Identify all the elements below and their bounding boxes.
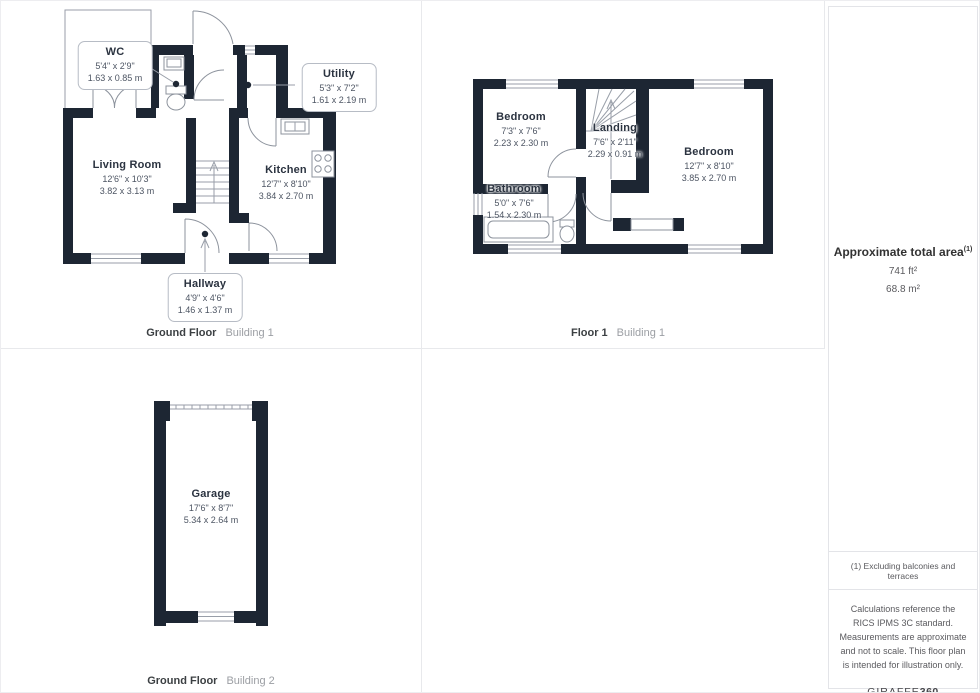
room-label-garage: Garage 17'6" x 8'7" 5.34 x 2.64 m	[184, 488, 239, 526]
giraffe360-logo: GIRAFFE360	[839, 684, 967, 693]
total-area-title: Approximate total area(1)	[829, 245, 977, 259]
footnote-text: (1) Excluding balconies and terraces	[837, 561, 969, 581]
stairs	[196, 161, 229, 203]
caption-floor: Ground Floor	[147, 675, 217, 687]
room-dim-imperial: 12'7" x 8'10"	[682, 161, 737, 172]
caption-floor: Ground Floor	[146, 327, 216, 339]
ground-floor-building1-plan: WC 5'4" x 2'9" 1.63 x 0.85 m Utility 5'3…	[1, 1, 421, 348]
footnote-balconies: (1) Excluding balconies and terraces	[829, 551, 977, 589]
callout-box-wc: WC 5'4" x 2'9" 1.63 x 0.85 m	[78, 41, 153, 90]
callout-box-utility: Utility 5'3" x 7'2" 1.61 x 2.19 m	[302, 63, 377, 112]
room-dim-metric: 1.61 x 2.19 m	[312, 95, 367, 106]
room-dim-metric: 2.29 x 0.91 m	[588, 149, 643, 160]
room-label-kitchen: Kitchen 12'7" x 8'10" 3.84 x 2.70 m	[259, 164, 314, 202]
total-area-imperial: 741 ft²	[829, 266, 977, 277]
caption-building: Building 1	[225, 327, 273, 339]
room-dim-imperial: 7'6" x 2'11"	[588, 137, 643, 148]
total-area-title-text: Approximate total area	[834, 245, 964, 259]
room-label-landing: Landing 7'6" x 2'11" 2.29 x 0.91 m	[588, 122, 643, 160]
total-area-footnote-marker: (1)	[964, 246, 973, 253]
room-dim-metric: 3.85 x 2.70 m	[682, 173, 737, 184]
room-dim-imperial: 12'7" x 8'10"	[259, 179, 314, 190]
caption-building: Building 2	[226, 675, 274, 687]
room-name: Utility	[312, 68, 367, 82]
callout-box-hallway: Hallway 4'9" x 4'6" 1.46 x 1.37 m	[168, 273, 243, 322]
wc-leader-dot	[173, 81, 179, 87]
room-dim-metric: 1.63 x 0.85 m	[88, 73, 143, 84]
room-name: Garage	[184, 488, 239, 502]
divider-vertical-2	[824, 1, 825, 349]
room-dim-imperial: 5'4" x 2'9"	[88, 61, 143, 72]
caption-building: Building 1	[617, 327, 665, 339]
garage-door	[170, 405, 252, 409]
room-name: Bathroom	[487, 183, 542, 197]
disclaimer-block: Calculations reference the RICS IPMS 3C …	[829, 589, 977, 688]
room-name: Landing	[588, 122, 643, 136]
room-label-bathroom: Bathroom 5'0" x 7'6" 1.54 x 2.30 m	[487, 183, 542, 221]
room-dim-imperial: 7'3" x 7'6"	[494, 126, 549, 137]
floor1-building1-plan: Bedroom 7'3" x 7'6" 2.23 x 2.30 m Landin…	[421, 1, 824, 348]
floor-caption-gf1: Ground FloorBuilding 1	[146, 327, 274, 339]
room-dim-metric: 3.82 x 3.13 m	[93, 186, 162, 197]
total-area-block: Approximate total area(1) 741 ft² 68.8 m…	[829, 245, 977, 295]
floor-caption-f1: Floor 1Building 1	[571, 327, 665, 339]
floor-caption-gf2: Ground FloorBuilding 2	[147, 675, 275, 687]
room-dim-metric: 1.54 x 2.30 m	[487, 210, 542, 221]
room-dim-imperial: 12'6" x 10'3"	[93, 174, 162, 185]
room-dim-metric: 1.46 x 1.37 m	[178, 305, 233, 316]
info-panel: Approximate total area(1) 741 ft² 68.8 m…	[828, 6, 978, 689]
windows	[198, 612, 234, 621]
room-dim-imperial: 4'9" x 4'6"	[178, 293, 233, 304]
room-name: Living Room	[93, 159, 162, 173]
room-dim-metric: 2.23 x 2.30 m	[494, 138, 549, 149]
room-label-bedroom-2: Bedroom 12'7" x 8'10" 3.85 x 2.70 m	[682, 146, 737, 184]
room-dim-imperial: 5'0" x 7'6"	[487, 198, 542, 209]
total-area-metric: 68.8 m²	[829, 284, 977, 295]
room-dim-imperial: 17'6" x 8'7"	[184, 503, 239, 514]
room-dim-metric: 3.84 x 2.70 m	[259, 191, 314, 202]
caption-floor: Floor 1	[571, 327, 608, 339]
room-name: Kitchen	[259, 164, 314, 178]
room-name: Hallway	[178, 278, 233, 292]
room-dim-metric: 5.34 x 2.64 m	[184, 515, 239, 526]
hallway-leader-dot	[202, 231, 208, 237]
disclaimer-text: Calculations reference the RICS IPMS 3C …	[839, 604, 966, 670]
room-dim-imperial: 5'3" x 7'2"	[312, 83, 367, 94]
floorplan-page: WC 5'4" x 2'9" 1.63 x 0.85 m Utility 5'3…	[0, 0, 980, 693]
utility-leader-dot	[245, 82, 251, 88]
room-label-living-room: Living Room 12'6" x 10'3" 3.82 x 3.13 m	[93, 159, 162, 197]
room-name: WC	[88, 46, 143, 60]
ground-floor-building2-plan: Garage 17'6" x 8'7" 5.34 x 2.64 m Ground…	[1, 348, 421, 693]
room-label-bedroom-1: Bedroom 7'3" x 7'6" 2.23 x 2.30 m	[494, 111, 549, 149]
room-name: Bedroom	[682, 146, 737, 160]
room-name: Bedroom	[494, 111, 549, 125]
floor1-building1-drawing	[421, 1, 824, 348]
